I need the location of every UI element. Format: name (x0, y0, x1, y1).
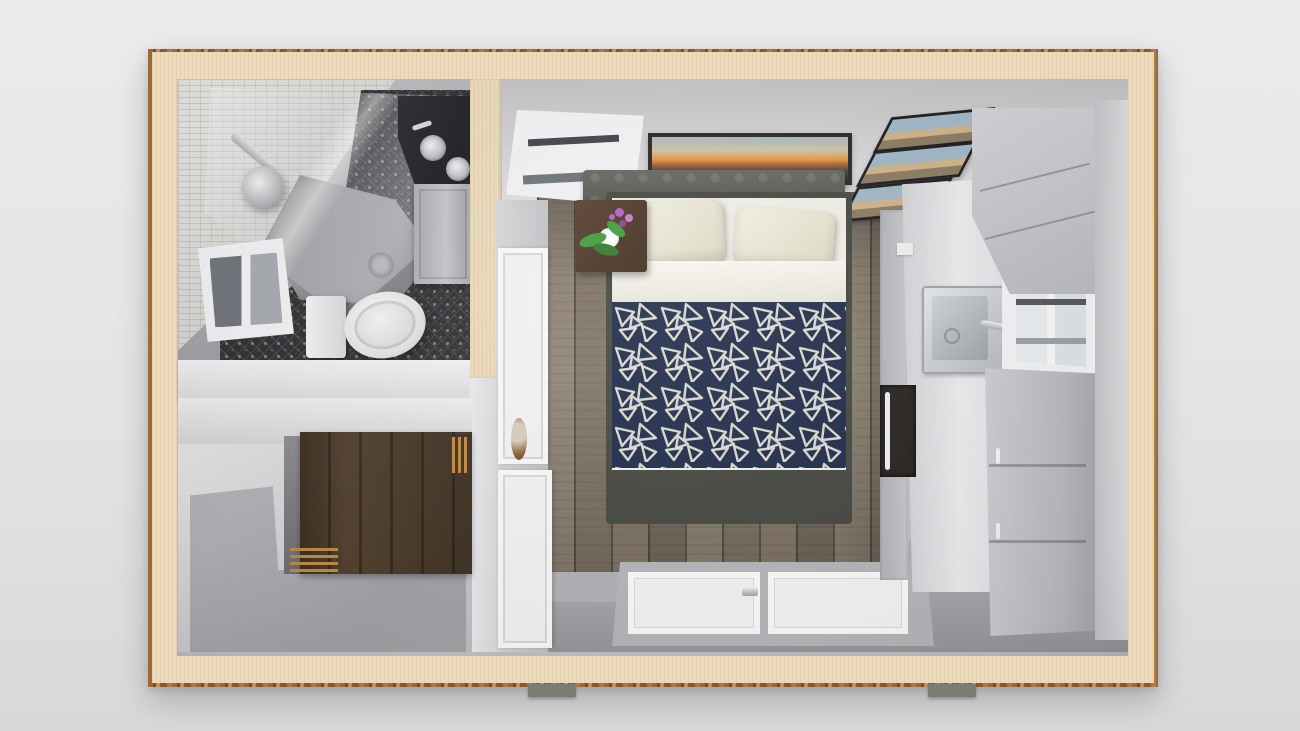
render-canvas (0, 0, 1300, 731)
orchid-bloom (619, 220, 626, 227)
wood-slats (290, 546, 338, 572)
window-sash (528, 134, 619, 145)
shower-head-icon (242, 166, 284, 208)
patio-door-panel (628, 572, 760, 634)
floor-mat (540, 572, 628, 602)
cabinet-seam (979, 162, 1090, 191)
door-knob-icon (511, 418, 527, 460)
partition-wall-horizontal (178, 360, 472, 400)
orchid-bloom (615, 208, 624, 217)
interior-door (498, 470, 552, 648)
toilet-seat (350, 295, 421, 355)
bathroom-window (198, 238, 294, 342)
cabinet-seam (989, 540, 1086, 543)
window-sash (1016, 338, 1087, 344)
window-sash (1016, 299, 1087, 305)
right-wall-face (1095, 100, 1128, 640)
tall-cabinet (985, 368, 1095, 636)
door-hardware-icon (742, 588, 758, 596)
cabinet-handle (996, 448, 1000, 464)
nightstand (575, 200, 647, 272)
microwave-handle (885, 392, 890, 469)
vessel-sink (420, 135, 446, 161)
foundation-pier (528, 684, 576, 697)
duvet-geometric-pattern (612, 302, 846, 468)
wood-slats (452, 437, 468, 473)
vanity-cabinet (414, 184, 472, 284)
orchid-bloom (609, 214, 615, 220)
microwave (880, 385, 916, 477)
vessel-sink (446, 157, 470, 181)
window-glass (210, 253, 283, 328)
building-shell (148, 49, 1158, 687)
sink-drain-icon (944, 328, 960, 344)
cabinet-seam (989, 464, 1086, 467)
orchid-bloom (625, 214, 633, 222)
folded-sheet (612, 261, 846, 303)
cabinet-seam (984, 211, 1095, 240)
patio-door-panel (768, 572, 908, 634)
kitchen-sink (922, 286, 1006, 374)
sink-bowl (932, 296, 988, 360)
wall-vent (897, 243, 913, 255)
toilet-tank (306, 296, 346, 358)
cabinet-handle (996, 523, 1000, 539)
foundation-pier (928, 684, 976, 697)
